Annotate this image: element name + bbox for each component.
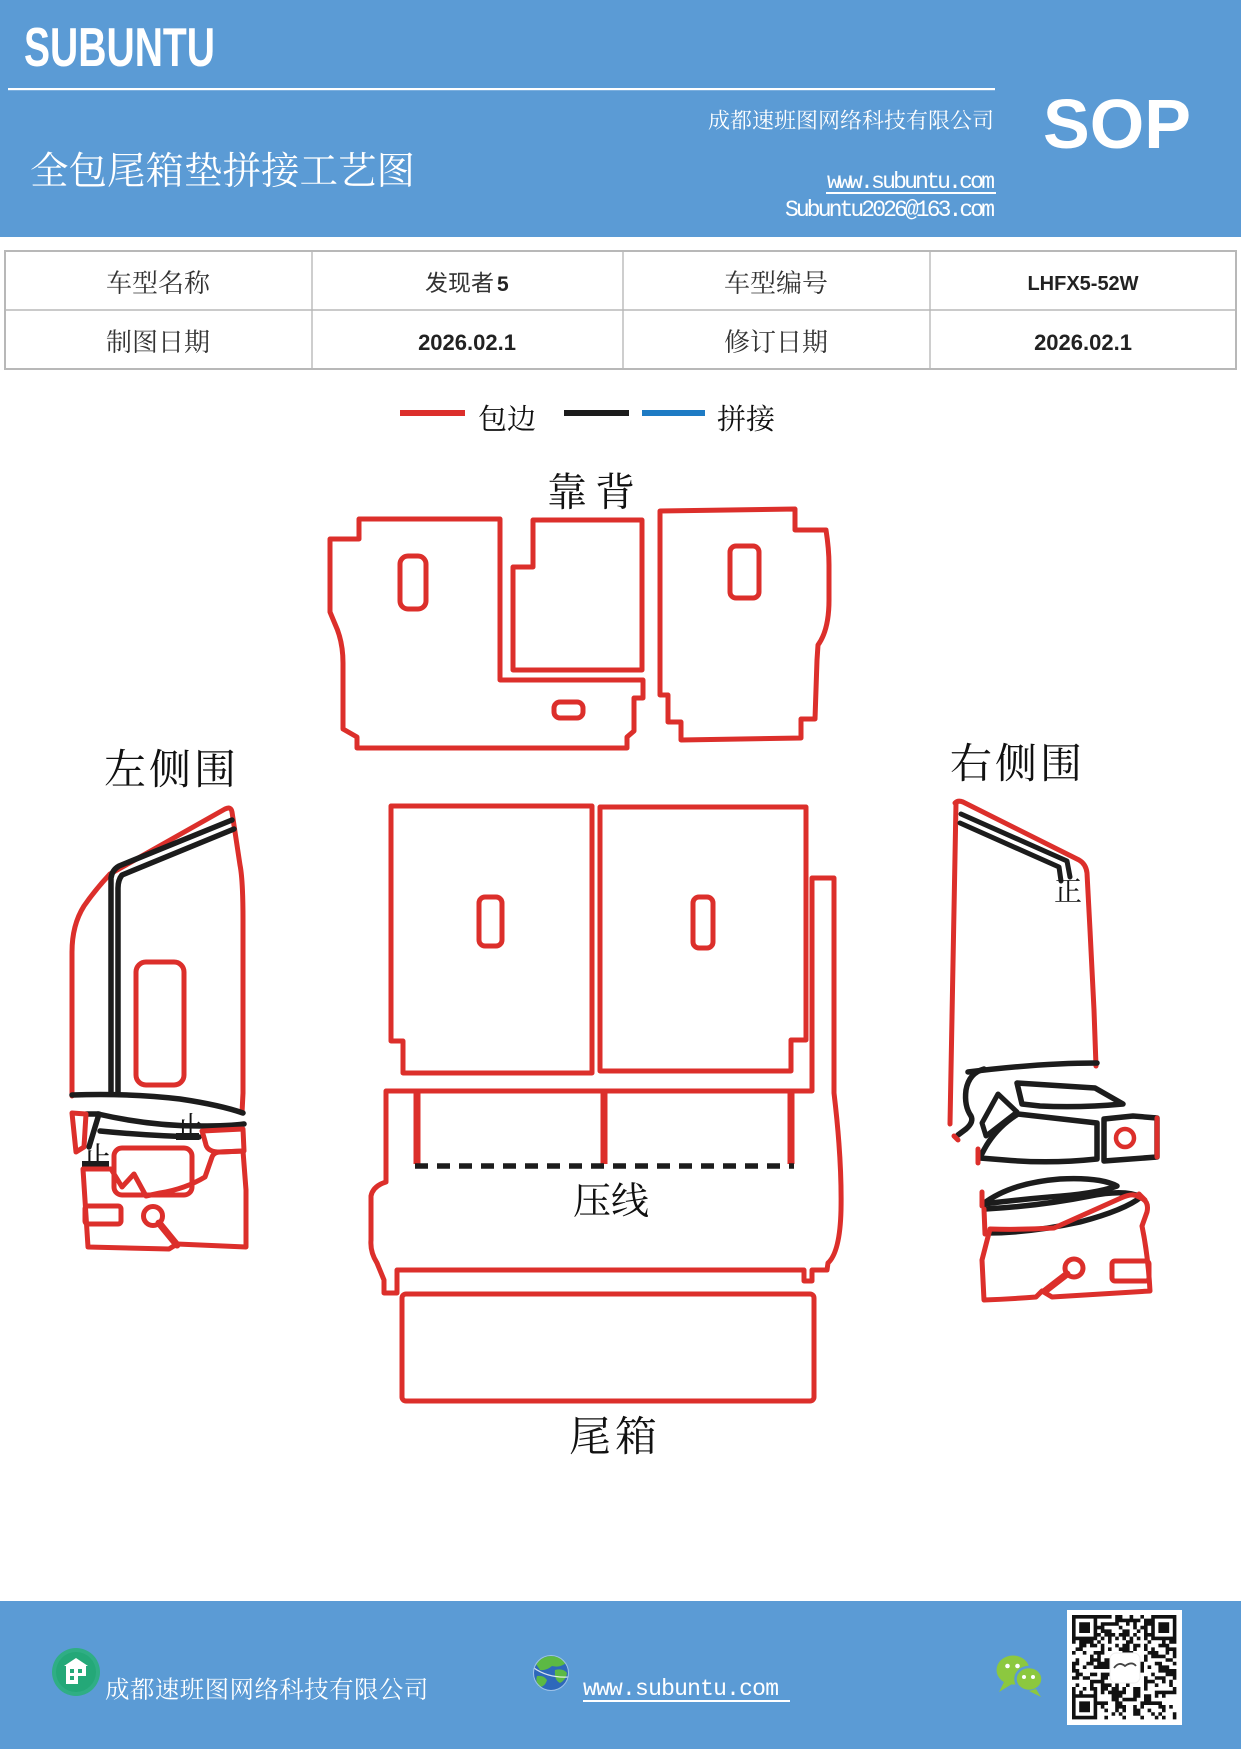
svg-text:2026.02.1: 2026.02.1	[1034, 330, 1132, 355]
svg-text:www.subuntu.com: www.subuntu.com	[583, 1676, 779, 1702]
svg-text:LHFX5-52W: LHFX5-52W	[1027, 273, 1138, 295]
svg-text:Subuntu2026@163.com: Subuntu2026@163.com	[785, 197, 995, 223]
svg-text:SUBUNTU: SUBUNTU	[24, 16, 215, 78]
svg-text:5: 5	[497, 273, 509, 296]
svg-text:www.subuntu.com: www.subuntu.com	[827, 169, 995, 195]
svg-text:SOP: SOP	[1043, 85, 1191, 163]
svg-text:2026.02.1: 2026.02.1	[418, 330, 516, 355]
